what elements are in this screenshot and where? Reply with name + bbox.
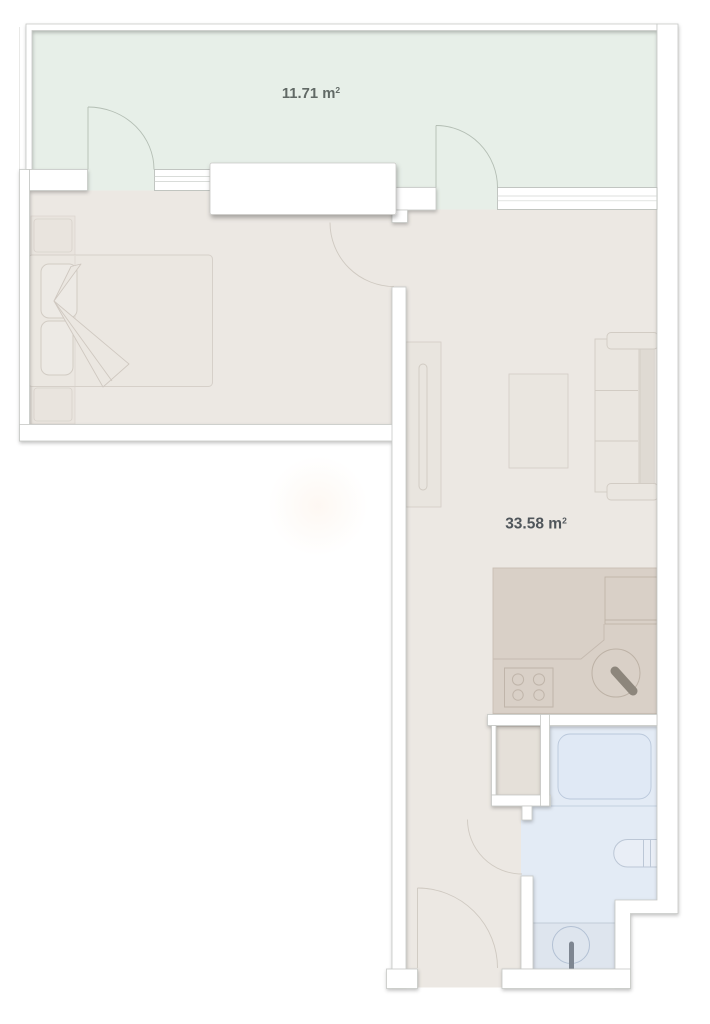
svg-text:33.58 m2: 33.58 m2 <box>505 516 567 533</box>
svg-text:11.71 m2: 11.71 m2 <box>282 85 340 102</box>
